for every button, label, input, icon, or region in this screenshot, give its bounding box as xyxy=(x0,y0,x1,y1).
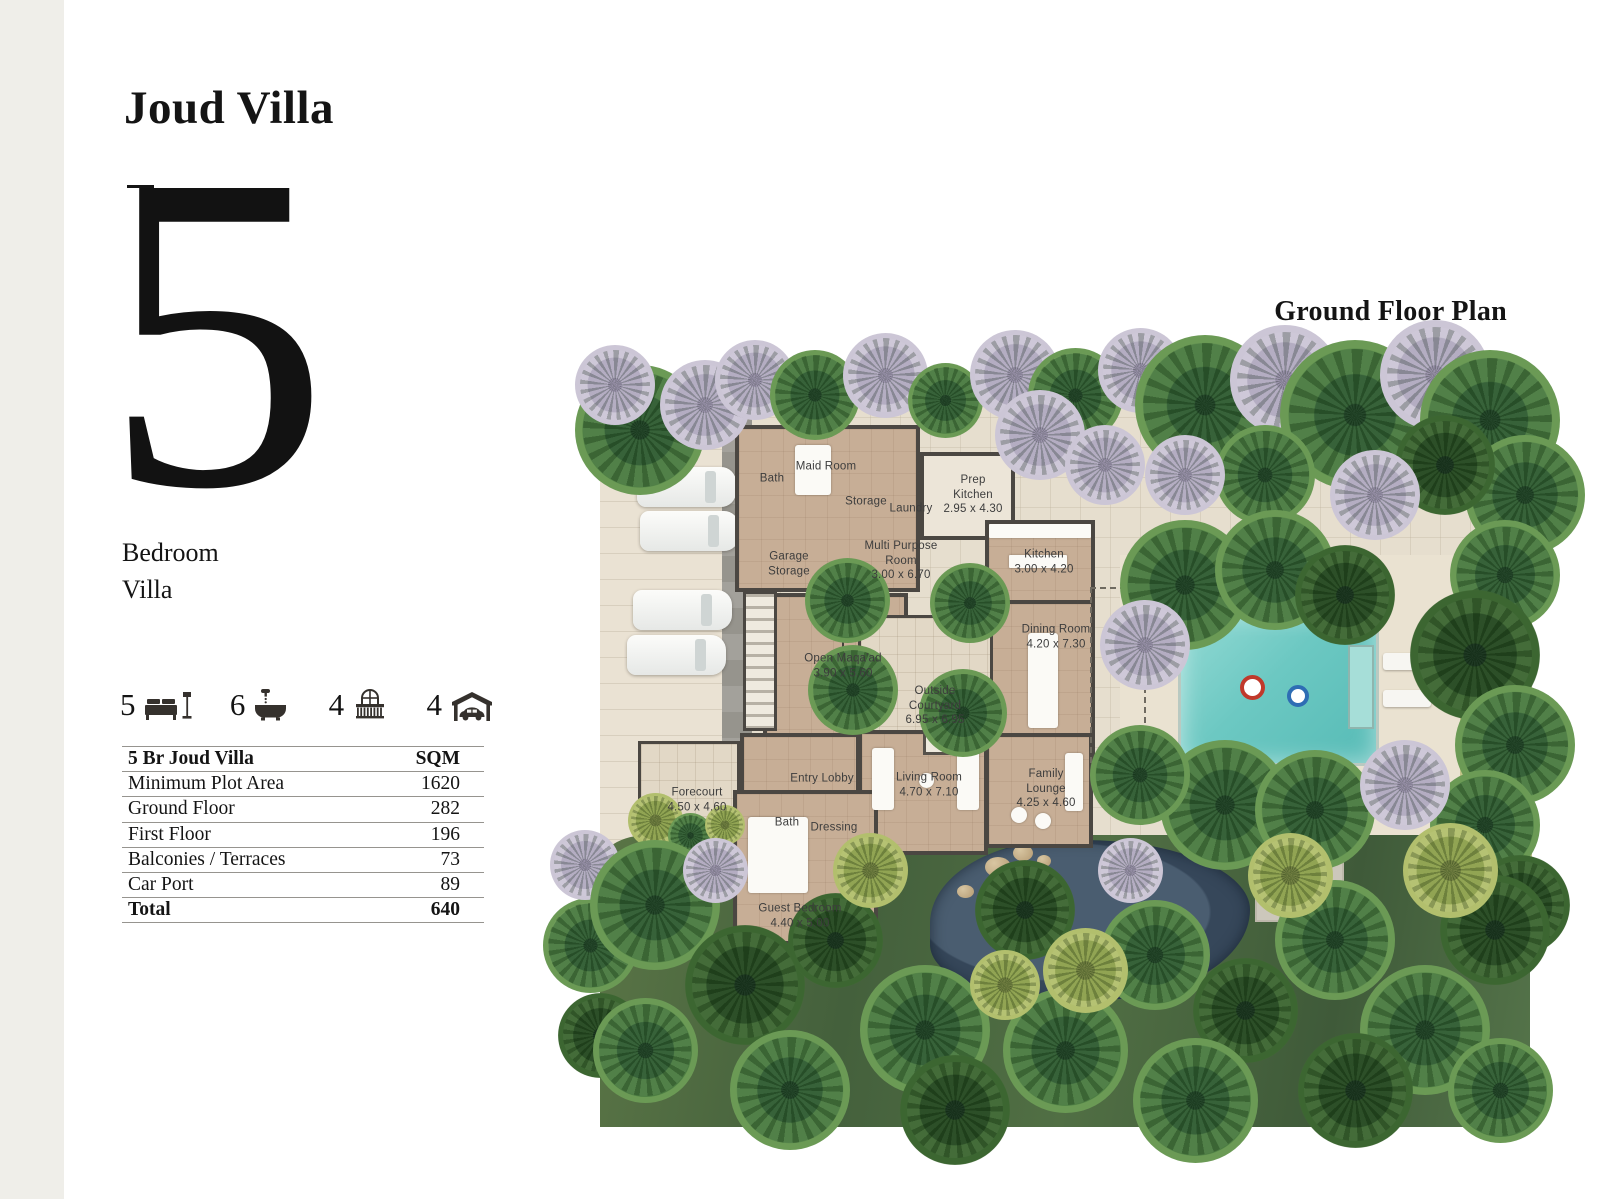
floor-plan: Bath Maid Room Storage Laundry Prep Kitc… xyxy=(585,345,1535,1135)
boundary-wall-top xyxy=(715,393,1530,401)
room-label-family-lounge: Family Lounge4.25 x 4.60 xyxy=(1016,767,1076,811)
stats-row: 5 6 4 xyxy=(120,688,494,721)
stat-carport: 4 xyxy=(426,689,494,721)
stat-bedrooms: 5 xyxy=(120,689,192,721)
rock xyxy=(957,885,974,898)
row-label: Minimum Plot Area xyxy=(128,773,284,795)
room-label-garage-storage: Garage Storage xyxy=(758,549,820,578)
row-value: 73 xyxy=(390,849,484,871)
pool-lounger xyxy=(1383,690,1431,707)
row-value: 196 xyxy=(390,824,484,846)
plan-title: Ground Floor Plan xyxy=(1274,296,1507,328)
row-label: First Floor xyxy=(128,824,211,846)
kitchen-counter xyxy=(989,524,1091,538)
swimmer-blue-float xyxy=(1287,685,1309,707)
grass-strip xyxy=(1460,590,1532,875)
room-label-maid-room: Maid Room xyxy=(781,460,871,475)
pool-spa-steps xyxy=(1348,645,1374,729)
bath-icon xyxy=(253,688,290,721)
brochure-page: { "page": { "title": "Joud Villa", "unit… xyxy=(0,0,1600,1199)
row-label: Total xyxy=(128,899,171,921)
parked-car xyxy=(633,590,732,630)
room-label-dining-room: Dining Room4.20 x 7.30 xyxy=(1001,622,1111,651)
table-row-minimum-plot-area: Minimum Plot Area 1620 xyxy=(122,771,484,796)
row-value: 1620 xyxy=(390,773,484,795)
left-margin-strip xyxy=(0,0,64,1199)
table-row-total: Total 640 xyxy=(122,897,484,922)
bed-icon xyxy=(144,691,192,721)
staircase xyxy=(743,591,777,731)
deck-lounger xyxy=(1265,859,1307,874)
pool-lounger xyxy=(1383,653,1431,670)
row-label: Car Port xyxy=(128,874,194,896)
lounge-chair xyxy=(1035,813,1051,829)
parked-car xyxy=(637,467,736,507)
room-label-forecourt: Forecourt4.50 x 4.60 xyxy=(642,785,752,814)
row-label: Balconies / Terraces xyxy=(128,849,285,871)
parked-car xyxy=(640,511,739,551)
row-value: 640 xyxy=(390,899,484,921)
bathrooms-count: 6 xyxy=(230,689,246,721)
room-label-open-maqaad: Open Maqa'ad3.90 x 5.60 xyxy=(778,651,908,680)
table-header-unit: SQM xyxy=(390,748,484,770)
table-header-label: 5 Br Joud Villa xyxy=(128,748,254,770)
row-value: 89 xyxy=(390,874,484,896)
rock xyxy=(1037,855,1051,867)
swimmer-red-float xyxy=(1240,675,1265,700)
room-label-multi-purpose-room: Multi Purpose Room3.00 x 6.70 xyxy=(853,539,949,583)
rock xyxy=(985,857,1011,877)
setback-dashed-line xyxy=(1090,587,1146,763)
stat-bathrooms: 6 xyxy=(230,688,291,721)
table-row-balconies-terraces: Balconies / Terraces 73 xyxy=(122,847,484,872)
room-label-outside-courtyard: Outside Courtyard6.95 x 6.95 xyxy=(895,684,975,728)
balcony-icon xyxy=(352,689,388,721)
spec-table: 5 Br Joud Villa SQM Minimum Plot Area 16… xyxy=(122,746,484,923)
carport-count: 4 xyxy=(426,689,442,721)
table-row-car-port: Car Port 89 xyxy=(122,872,484,897)
carport-icon xyxy=(450,690,494,721)
room-label-living-room: Living Room4.70 x 7.10 xyxy=(874,770,984,799)
room-label-kitchen: Kitchen3.00 x 4.20 xyxy=(989,547,1099,576)
room-label-guest-bedroom: Guest Bedroom4.40 x 5.00 xyxy=(735,901,865,930)
unit-type-label: Bedroom Villa xyxy=(122,535,219,609)
room-label-prep-kitchen: Prep Kitchen2.95 x 4.30 xyxy=(941,473,1005,517)
parked-car xyxy=(627,635,726,675)
balconies-count: 4 xyxy=(329,689,345,721)
stat-balconies: 4 xyxy=(329,689,389,721)
table-header-row: 5 Br Joud Villa SQM xyxy=(122,746,484,771)
bedroom-count-numeral: 5 xyxy=(103,106,329,558)
table-row-first-floor: First Floor 196 xyxy=(122,822,484,847)
row-value: 282 xyxy=(390,798,484,820)
table-row-ground-floor: Ground Floor 282 xyxy=(122,796,484,821)
deck-lounger xyxy=(1265,883,1307,898)
room-label-dressing: Dressing xyxy=(799,821,869,836)
bedrooms-count: 5 xyxy=(120,689,136,721)
row-label: Ground Floor xyxy=(128,798,235,820)
room-label-entry-lobby: Entry Lobby xyxy=(767,772,877,787)
room-label-laundry: Laundry xyxy=(876,502,946,517)
